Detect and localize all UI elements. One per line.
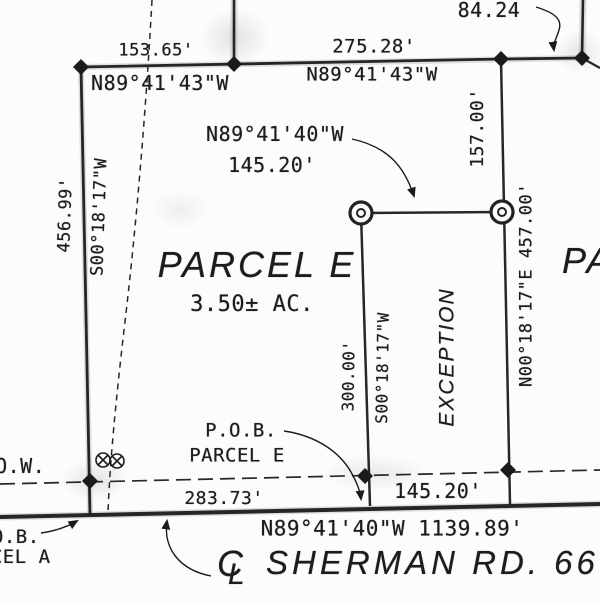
dim-top-right-distance: 84.24 bbox=[458, 0, 521, 20]
dim-road-seg-left: 283.73' bbox=[184, 490, 263, 508]
parcel-e-area: 3.50± AC. bbox=[190, 294, 314, 316]
dim-west-bearing: S00°18'17"W bbox=[89, 158, 110, 277]
leader-pob-e bbox=[284, 431, 361, 499]
dim-east-upper-distance: 157.00' bbox=[469, 88, 487, 167]
dim-road-line-bearing-distance: N89°41'40"W 1139.89' bbox=[261, 519, 524, 540]
exception-north-line bbox=[361, 212, 502, 213]
road-name-label: SHERMAN RD. 66' bbox=[266, 546, 600, 579]
dim-exception-north-distance: 145.20' bbox=[228, 155, 316, 175]
dim-west-distance: 456.99' bbox=[56, 177, 76, 253]
dim-top-left-bearing: N89°41'43"W bbox=[91, 73, 229, 93]
east-boundary-line bbox=[501, 59, 510, 504]
leader-145-20 bbox=[352, 139, 414, 196]
west-boundary-line bbox=[81, 67, 90, 515]
dim-top-mid-distance: 275.28' bbox=[332, 38, 416, 57]
dim-top-left-distance: 153.65' bbox=[118, 43, 193, 60]
exception-title: EXCEPTION bbox=[437, 287, 458, 426]
dim-east-line-bearing-distance: N00°18'17"E 457.00' bbox=[519, 183, 536, 387]
centerline-symbol: C L bbox=[217, 546, 261, 600]
pob-parcel-e-line2: PARCEL E bbox=[189, 447, 285, 466]
dim-exception-west-distance: 300.00' bbox=[340, 340, 357, 411]
pob-parcel-a-line1: P.O.B. bbox=[0, 528, 40, 547]
centerline-symbol-l: L bbox=[228, 560, 245, 590]
leader-84-24 bbox=[536, 7, 560, 50]
top-stub-line-right bbox=[582, 0, 583, 58]
parcel-e-title: PARCEL E bbox=[158, 247, 357, 283]
row-label: R.O.W. bbox=[0, 456, 45, 476]
pob-parcel-a-line2: PARCEL A bbox=[0, 548, 51, 567]
leader-centerline bbox=[166, 521, 211, 576]
dim-road-seg-mid: 145.20' bbox=[394, 481, 482, 501]
survey-plat-parcel-e: 153.65' N89°41'43"W 275.28' N89°41'43"W … bbox=[0, 0, 600, 603]
leader-pob-a bbox=[41, 521, 77, 533]
exception-west-line bbox=[361, 213, 370, 506]
dim-top-mid-bearing: N89°41'43"W bbox=[306, 66, 437, 85]
pob-parcel-e-line1: P.O.B. bbox=[205, 422, 277, 441]
dim-exception-north-bearing: N89°41'40"W bbox=[206, 124, 344, 144]
adjacent-parcel-label-partial: PA bbox=[562, 243, 600, 279]
dim-exception-west-bearing: S00°18'17"W bbox=[374, 312, 392, 424]
